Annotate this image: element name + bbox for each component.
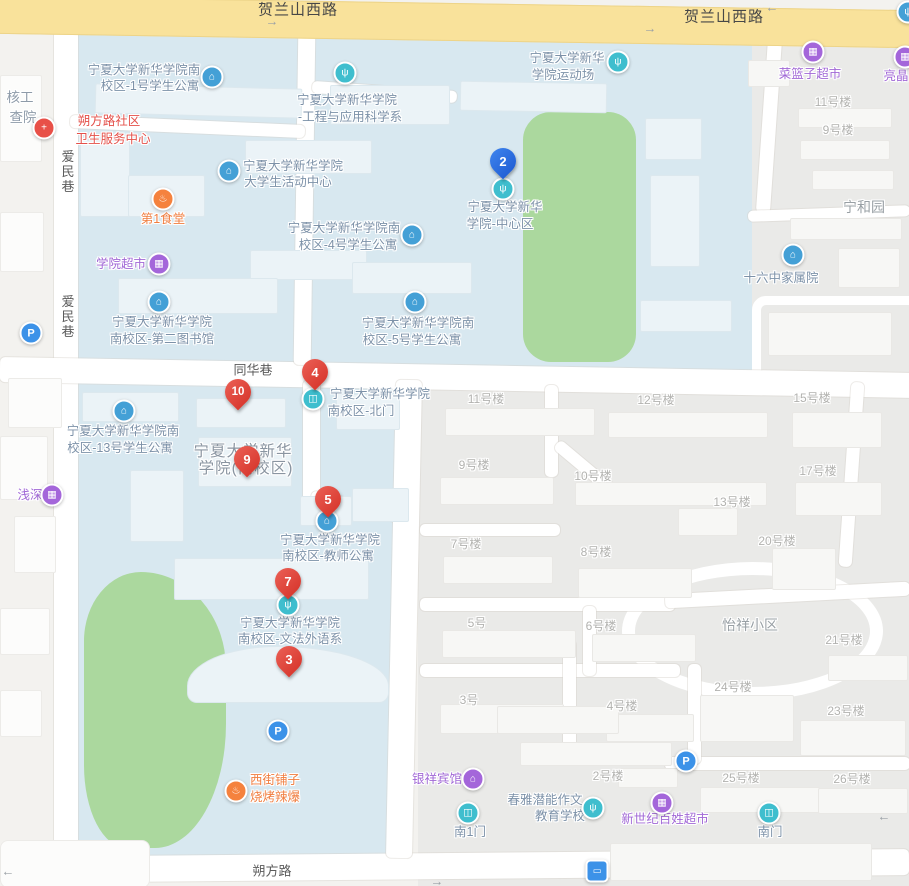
engineering-dept-icon[interactable]: ψ <box>334 62 357 85</box>
building <box>250 250 367 280</box>
poi-label-qianshen[interactable]: 浅深 <box>17 488 42 502</box>
poi-label-shiliuzhong[interactable]: 十六中家属院 <box>743 271 818 285</box>
building-label: 8号楼 <box>581 546 612 560</box>
building <box>700 695 794 742</box>
building <box>650 175 700 267</box>
poi-label-canteen[interactable]: 第1食堂 <box>141 212 185 226</box>
clipped-poi-left-line1: 核工 <box>7 90 34 106</box>
liangjing-icon[interactable]: ▦ <box>894 46 909 69</box>
road-label-tonghua-lane: 同华巷 <box>233 364 272 379</box>
poi-label-center-zone-l1[interactable]: 宁夏大学新华 <box>467 200 542 214</box>
building <box>795 482 882 516</box>
road-label-aimin-lane-2: 爱民巷 <box>59 295 74 340</box>
parking-icon[interactable]: P <box>20 322 43 345</box>
building <box>0 212 44 272</box>
poi-label-apt5-l2[interactable]: 校区-5号学生公寓 <box>363 333 462 347</box>
road-label-helanshan-west-1: 贺兰山西路 <box>258 1 338 18</box>
parking-icon[interactable]: P <box>267 720 290 743</box>
building <box>497 706 619 734</box>
poi-label-apt4-l2[interactable]: 校区-4号学生公寓 <box>299 238 398 252</box>
poi-label-chunya-l1[interactable]: 春雅潜能作文 <box>507 793 582 807</box>
building-label: 4号楼 <box>607 700 638 714</box>
building <box>442 630 576 658</box>
marker-pin-9[interactable]: 9 <box>229 441 266 478</box>
marker-pin-2[interactable]: 2 <box>485 143 522 180</box>
building <box>768 312 892 356</box>
xinshiji-market-icon[interactable]: ▦ <box>651 792 674 815</box>
building <box>443 556 553 584</box>
building <box>790 218 902 240</box>
poi-label-stadium-l1[interactable]: 宁夏大学新华 <box>529 51 604 65</box>
road-arrow: ← <box>766 0 779 15</box>
building <box>460 81 608 114</box>
building <box>812 170 894 190</box>
poi-label-apt13-l1[interactable]: 宁夏大学新华学院南 <box>67 424 180 438</box>
marker-pin-7[interactable]: 7 <box>270 563 307 600</box>
building <box>8 378 62 428</box>
building <box>818 788 908 814</box>
dorm4-icon[interactable]: ⌂ <box>401 224 424 247</box>
building-label: 20号楼 <box>758 535 795 549</box>
building-label: 12号楼 <box>637 394 674 408</box>
road-label-aimin-lane-1: 爱民巷 <box>59 150 74 195</box>
bus-stop-icon[interactable]: ▭ <box>586 860 609 883</box>
building-label: 25号楼 <box>722 772 759 786</box>
building <box>14 516 56 573</box>
building <box>118 278 278 314</box>
building-label: 21号楼 <box>825 634 862 648</box>
poi-label-teacher-l2[interactable]: 南校区-教师公寓 <box>282 549 374 563</box>
building-label: 7号楼 <box>451 538 482 552</box>
building <box>0 608 50 655</box>
poi-label-north-gate-l1[interactable]: 宁夏大学新华学院 <box>330 387 430 401</box>
building <box>772 548 836 590</box>
stadium-icon[interactable]: ψ <box>607 51 630 74</box>
poi-label-cailanzi[interactable]: 菜篮子超市 <box>779 67 842 81</box>
road-residential-h4 <box>665 757 909 770</box>
area-label-ninghe-garden: 宁和园 <box>843 199 885 215</box>
poi-label-activity-l1[interactable]: 宁夏大学新华学院 <box>243 159 343 173</box>
marker-pin-4[interactable]: 4 <box>297 354 334 391</box>
building <box>828 655 908 681</box>
building-label: 15号楼 <box>793 392 830 406</box>
building <box>640 300 732 332</box>
building <box>440 477 554 505</box>
canteen-icon[interactable]: ♨ <box>152 188 175 211</box>
building <box>618 768 678 788</box>
poi-label-apt5-l1[interactable]: 宁夏大学新华学院南 <box>362 316 475 330</box>
poi-label-apt13-l2[interactable]: 校区-13号学生公寓 <box>67 441 173 455</box>
marker-pin-5[interactable]: 5 <box>310 481 347 518</box>
building-label: 6号楼 <box>586 620 617 634</box>
poi-label-yinxiang-hotel[interactable]: 银祥宾馆 <box>412 772 462 786</box>
map-canvas[interactable]: 贺兰山西路 贺兰山西路 爱民巷 爱民巷 同华巷 朔方路 → → ← ← → ← … <box>0 0 909 886</box>
road-residential-h3 <box>420 664 680 677</box>
road-residential-h1 <box>420 524 560 536</box>
activity-center-icon[interactable]: ⌂ <box>218 160 241 183</box>
road-residential-h2 <box>420 598 675 611</box>
dorm13-icon[interactable]: ⌂ <box>113 400 136 423</box>
building-label: 9号楼 <box>823 124 854 138</box>
poi-label-chunya-l2[interactable]: 教育学校 <box>535 809 585 823</box>
building <box>645 118 702 160</box>
building <box>800 720 906 756</box>
sports-field-south <box>84 572 226 848</box>
chunya-school-icon[interactable]: ψ <box>582 797 605 820</box>
building <box>610 843 872 881</box>
building <box>678 508 738 536</box>
poi-label-apt1-l1[interactable]: 宁夏大学新华学院南 <box>88 63 201 77</box>
building-label: 11号楼 <box>468 393 504 407</box>
building-label: 11号楼 <box>815 96 851 110</box>
south-gate1-icon[interactable]: ◫ <box>457 802 480 825</box>
poi-label-stadium-l2[interactable]: 学院运动场 <box>532 68 595 82</box>
building-label: 26号楼 <box>833 773 870 787</box>
poi-label-library-l1[interactable]: 宁夏大学新华学院 <box>112 315 212 329</box>
road-arrow: ← <box>878 809 891 824</box>
building <box>80 140 130 217</box>
south-gate-icon[interactable]: ◫ <box>758 802 781 825</box>
poi-label-south-gate1[interactable]: 南1门 <box>454 825 486 839</box>
building-label: 17号楼 <box>799 465 836 479</box>
poi-label-liberal-arts-l1[interactable]: 宁夏大学新华学院 <box>240 616 340 630</box>
shiliuzhong-icon[interactable]: ⌂ <box>782 244 805 267</box>
building <box>0 690 42 737</box>
building <box>608 412 768 438</box>
dorm5-icon[interactable]: ⌂ <box>404 291 427 314</box>
building-label: 9号楼 <box>459 459 490 473</box>
cailanzi-market-icon[interactable]: ▦ <box>802 41 825 64</box>
sports-field-north <box>523 112 636 362</box>
poi-label-liberal-arts-l2[interactable]: 南校区-文法外语系 <box>238 632 342 646</box>
qianshen-icon[interactable]: ▦ <box>41 484 64 507</box>
building-label: 3号 <box>460 694 479 708</box>
road-label-shuofang: 朔方路 <box>252 865 291 880</box>
poi-label-engineering-l2[interactable]: -工程与应用科学系 <box>298 110 402 124</box>
marker-pin-3[interactable]: 3 <box>271 641 308 678</box>
building <box>838 248 900 288</box>
building-label: 13号楼 <box>713 496 750 510</box>
building <box>352 488 409 522</box>
poi-label-health-l1[interactable]: 朔方路社区 <box>78 114 141 128</box>
poi-label-south-gate[interactable]: 南门 <box>757 825 782 839</box>
building <box>0 840 150 886</box>
poi-label-center-zone-l2[interactable]: 学院-中心区 <box>467 217 534 231</box>
health-center-icon[interactable]: + <box>33 117 56 140</box>
marker-pin-10[interactable]: 10 <box>220 374 257 411</box>
center-zone-icon[interactable]: ψ <box>492 178 515 201</box>
building-label: 23号楼 <box>827 705 864 719</box>
building-label: 5号 <box>468 617 487 631</box>
poi-label-college-market[interactable]: 学院超市 <box>96 257 146 271</box>
poi-label-liangjing[interactable]: 亮晶 <box>883 69 908 83</box>
road-arrow: → <box>431 874 444 886</box>
area-label-yixiang-estate: 怡祥小区 <box>722 617 778 633</box>
building <box>174 558 369 600</box>
road-arrow: → <box>644 21 657 36</box>
poi-label-apt1-l2[interactable]: 校区-1号学生公寓 <box>101 79 200 93</box>
library-icon[interactable]: ⌂ <box>148 291 171 314</box>
college-market-icon[interactable]: ▦ <box>148 253 171 276</box>
yinxiang-hotel-icon[interactable]: ⌂ <box>462 768 485 791</box>
road-arrow: ← <box>2 864 15 879</box>
poi-label-library-l2[interactable]: 南校区-第二图书馆 <box>110 332 214 346</box>
poi-label-activity-l2[interactable]: 大学生活动中心 <box>244 175 332 189</box>
north-gate-icon[interactable]: ◫ <box>302 388 325 411</box>
poi-label-xijie-l1[interactable]: 西街铺子 <box>250 773 300 787</box>
poi-label-north-gate-l2[interactable]: 南校区-北门 <box>328 404 395 418</box>
building <box>352 262 472 294</box>
poi-label-apt4-l1[interactable]: 宁夏大学新华学院南 <box>288 221 401 235</box>
building <box>592 634 696 662</box>
road-label-helanshan-west-2: 贺兰山西路 <box>684 8 764 25</box>
poi-label-engineering-l1[interactable]: 宁夏大学新华学院 <box>297 93 397 107</box>
building <box>520 742 672 766</box>
building-label: 24号楼 <box>714 681 751 695</box>
building <box>130 470 184 542</box>
building <box>445 408 595 436</box>
building-label: 10号楼 <box>574 470 611 484</box>
poi-label-health-l2[interactable]: 卫生服务中心 <box>75 132 150 146</box>
building <box>800 140 890 160</box>
building <box>792 412 882 448</box>
building <box>578 568 692 598</box>
poi-label-teacher-l1[interactable]: 宁夏大学新华学院 <box>280 533 380 547</box>
dorm1-icon[interactable]: ⌂ <box>201 66 224 89</box>
building-label: 2号楼 <box>593 770 624 784</box>
xijie-bbq-icon[interactable]: ♨ <box>225 780 248 803</box>
parking-icon[interactable]: P <box>675 750 698 773</box>
building <box>606 714 694 742</box>
poi-label-xijie-l2[interactable]: 烧烤辣爆 <box>250 790 300 804</box>
